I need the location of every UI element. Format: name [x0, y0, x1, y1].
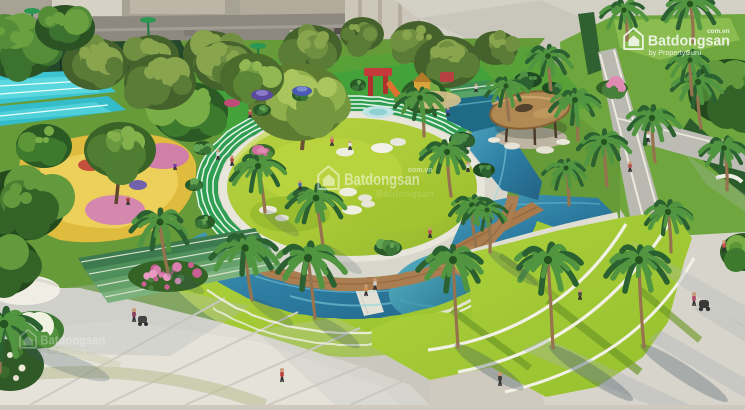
svg-text:by PropertyGuru: by PropertyGuru	[649, 48, 702, 57]
svg-text:Batdongsan: Batdongsan	[376, 189, 434, 200]
svg-text:com.vn: com.vn	[707, 28, 730, 35]
svg-text:com.vn: com.vn	[408, 167, 433, 174]
svg-text:Batdongsan: Batdongsan	[40, 333, 105, 348]
svg-text:by PropertyGuru: by PropertyGuru	[41, 348, 87, 355]
